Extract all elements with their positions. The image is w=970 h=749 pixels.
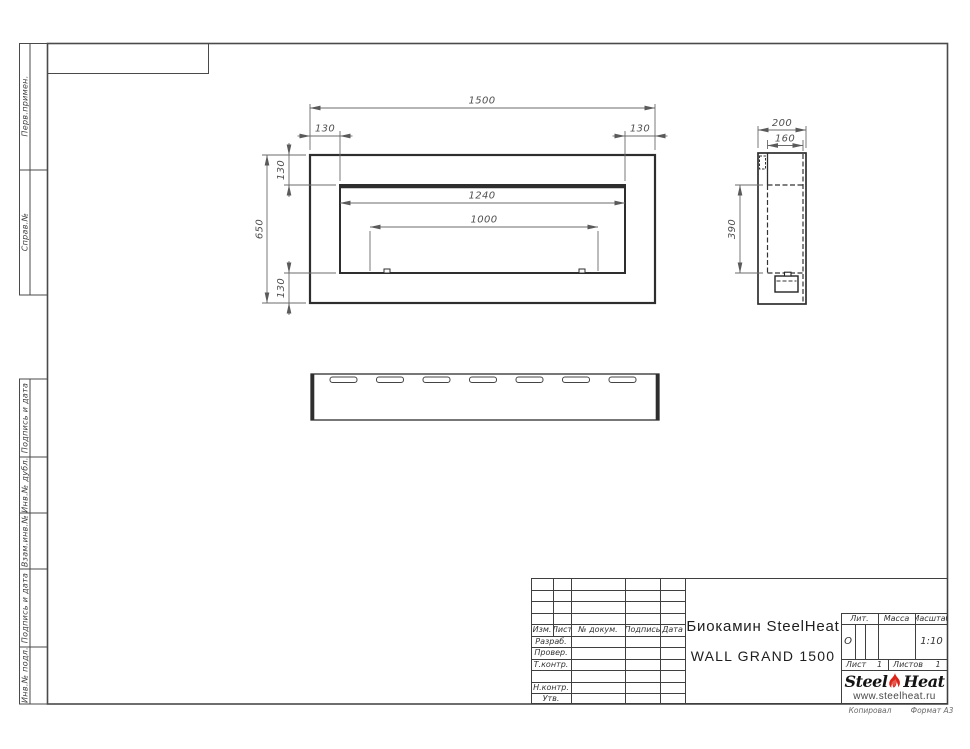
dim-flange-bottom: 130 xyxy=(276,278,287,298)
sheet-label: Лист xyxy=(841,659,871,671)
title-block: Изм. Лист № докум. Подпись Дата Разраб. … xyxy=(531,578,948,704)
logo-heat: Heat xyxy=(903,672,944,691)
row-tkontr: Т.контр. xyxy=(531,659,571,671)
scale-value: 1:10 xyxy=(915,624,948,659)
stamp-sprav-no: Справ.№ xyxy=(21,213,30,251)
front-view xyxy=(310,155,655,303)
drawing-sheet: 1500 130 130 1240 1000 650 130 130 xyxy=(0,0,970,749)
dim-opening-width: 1240 xyxy=(468,191,495,202)
burner-tab-left xyxy=(384,269,390,273)
burner-nub xyxy=(785,272,792,276)
row-prover: Провер. xyxy=(531,647,571,659)
side-view xyxy=(758,153,806,304)
dim-opening-height: 390 xyxy=(727,219,738,239)
lit-label: Лит. xyxy=(841,613,878,625)
logo-url: www.steelheat.ru xyxy=(853,691,936,702)
lit-value: О xyxy=(841,624,855,659)
stamp-inv-podl: Инв.№ подл. xyxy=(21,647,30,703)
stamp-inv-dubl: Инв.№ дубл. xyxy=(21,457,30,513)
scale-label: Масштаб xyxy=(915,613,948,625)
product-title: Биокамин SteelHeat WALL GRAND 1500 xyxy=(685,618,841,664)
sheets-value: 1 xyxy=(928,659,948,671)
product-title-line2: WALL GRAND 1500 xyxy=(691,648,836,664)
col-data: Дата xyxy=(660,624,685,636)
stamp-perv-primen: Перв.примен. xyxy=(21,75,30,136)
col-podpis: Подпись xyxy=(625,624,660,636)
logo-steel: Steel xyxy=(845,672,888,691)
dim-depth: 200 xyxy=(772,118,792,129)
sheets-label: Листов xyxy=(888,659,928,671)
col-list: Лист xyxy=(553,624,571,636)
stamp-vzam-inv: Взам.инв.№ xyxy=(21,515,30,567)
burner-tab-right xyxy=(579,269,585,273)
col-izm: Изм. xyxy=(531,624,553,636)
flame-icon xyxy=(888,673,902,690)
product-title-line1: Биокамин SteelHeat xyxy=(686,618,839,635)
burner-box xyxy=(775,276,798,292)
top-view xyxy=(311,374,659,420)
stamp-podpis-data-1: Подпись и дата xyxy=(21,383,30,453)
dim-burner-length: 1000 xyxy=(470,215,497,226)
stamp-podpis-data-2: Подпись и дата xyxy=(21,573,30,643)
dim-flange-right: 130 xyxy=(630,124,650,135)
sheet-value: 1 xyxy=(871,659,888,671)
dim-body-depth: 160 xyxy=(775,134,795,145)
mass-label: Масса xyxy=(878,613,915,625)
format-note: Формат А3 xyxy=(911,706,954,715)
dim-total-height: 650 xyxy=(255,219,266,239)
row-nkontr: Н.контр. xyxy=(531,682,571,694)
company-logo: Steel Heat www.steelheat.ru xyxy=(841,670,948,704)
copy-note: Копировал xyxy=(849,706,892,715)
dim-total-width: 1500 xyxy=(468,96,495,107)
dim-flange-top: 130 xyxy=(276,160,287,180)
row-razrab: Разраб. xyxy=(531,636,571,648)
row-utv: Утв. xyxy=(531,693,571,705)
corner-reference-box xyxy=(48,44,209,74)
dim-flange-left: 130 xyxy=(315,124,335,135)
col-dokum: № докум. xyxy=(571,624,625,636)
